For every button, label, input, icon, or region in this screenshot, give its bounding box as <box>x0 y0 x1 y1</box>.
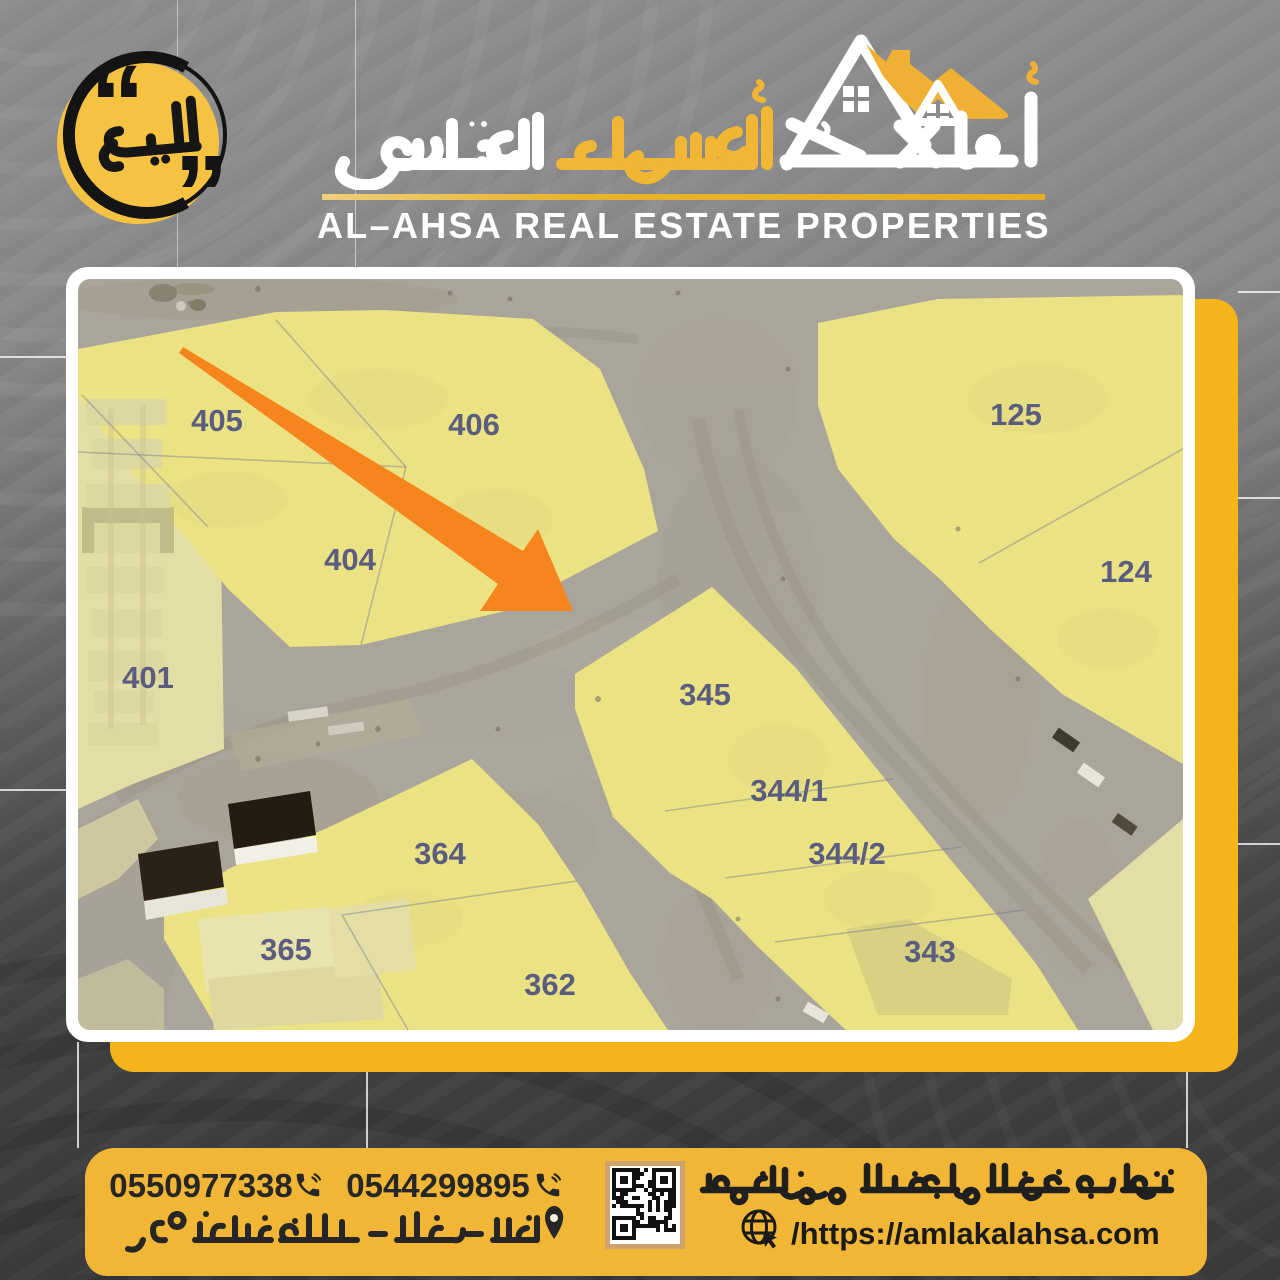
svg-text:124: 124 <box>1100 554 1152 589</box>
svg-text:343: 343 <box>904 934 956 969</box>
svg-text:362: 362 <box>524 967 576 1002</box>
svg-text:401: 401 <box>122 660 174 695</box>
svg-text:344/1: 344/1 <box>750 773 828 808</box>
svg-text:404: 404 <box>324 542 376 577</box>
svg-text:364: 364 <box>414 836 466 871</box>
svg-text:345: 345 <box>679 677 731 712</box>
svg-text:406: 406 <box>448 407 500 442</box>
svg-text:344/2: 344/2 <box>808 836 886 871</box>
svg-text:405: 405 <box>191 403 243 438</box>
svg-text:365: 365 <box>260 932 312 967</box>
svg-text:125: 125 <box>990 397 1042 432</box>
